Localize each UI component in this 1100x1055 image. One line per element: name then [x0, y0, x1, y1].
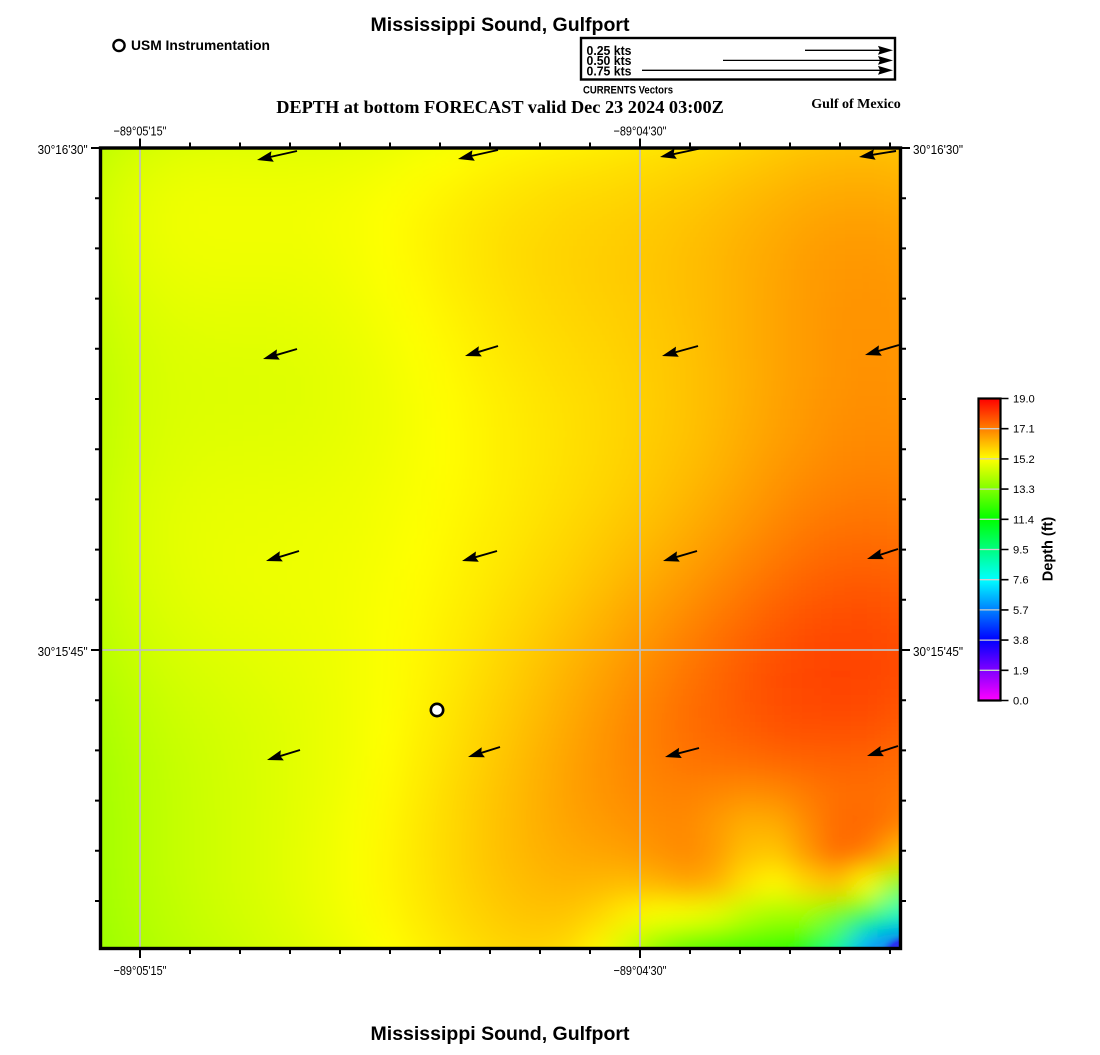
svg-text:7.6: 7.6 [1013, 575, 1029, 587]
svg-text:15.2: 15.2 [1013, 454, 1035, 466]
svg-text:11.4: 11.4 [1013, 514, 1034, 526]
svg-text:−89°05'15": −89°05'15" [114, 963, 167, 978]
svg-text:Mississippi Sound, Gulfport: Mississippi Sound, Gulfport [371, 1023, 630, 1045]
svg-text:Mississippi Sound, Gulfport: Mississippi Sound, Gulfport [371, 14, 630, 36]
svg-text:0.75 kts: 0.75 kts [587, 63, 632, 78]
svg-text:30°15'45": 30°15'45" [913, 644, 963, 659]
svg-text:19.0: 19.0 [1013, 394, 1035, 406]
svg-text:13.3: 13.3 [1013, 484, 1035, 496]
svg-text:0.0: 0.0 [1013, 696, 1029, 708]
svg-text:3.8: 3.8 [1013, 635, 1029, 647]
svg-text:−89°04'30": −89°04'30" [614, 963, 667, 978]
svg-text:1.9: 1.9 [1013, 665, 1029, 677]
svg-text:17.1: 17.1 [1013, 424, 1035, 436]
svg-text:CURRENTS Vectors: CURRENTS Vectors [583, 85, 673, 97]
svg-text:−89°04'30": −89°04'30" [614, 124, 667, 139]
svg-text:5.7: 5.7 [1013, 605, 1029, 617]
svg-text:DEPTH at bottom FORECAST valid: DEPTH at bottom FORECAST valid Dec 23 20… [276, 97, 724, 117]
svg-text:Gulf of Mexico: Gulf of Mexico [811, 97, 900, 112]
svg-text:9.5: 9.5 [1013, 545, 1029, 557]
svg-text:−89°05'15": −89°05'15" [114, 124, 167, 139]
svg-text:Depth (ft): Depth (ft) [1041, 517, 1057, 582]
svg-text:30°15'45": 30°15'45" [38, 644, 88, 659]
svg-text:USM Instrumentation: USM Instrumentation [131, 38, 270, 53]
svg-text:30°16'30": 30°16'30" [38, 142, 88, 157]
svg-text:30°16'30": 30°16'30" [913, 142, 963, 157]
